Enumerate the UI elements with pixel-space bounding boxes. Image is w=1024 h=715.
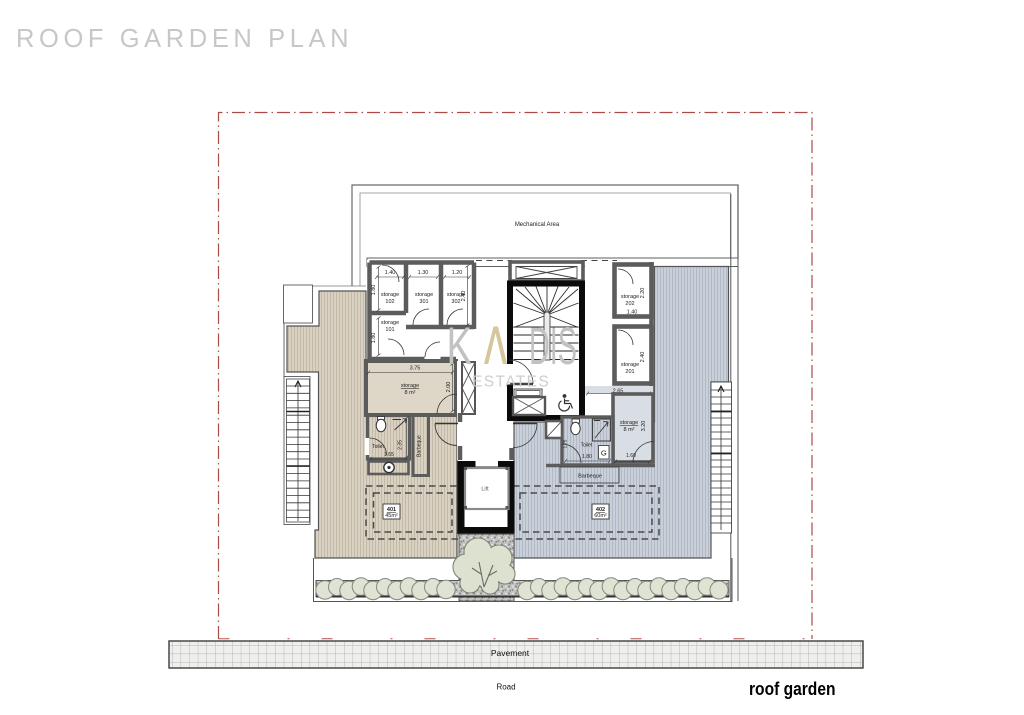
svg-text:1.30: 1.30 <box>418 270 429 276</box>
svg-text:Toilet: Toilet <box>372 444 384 450</box>
svg-text:storage: storage <box>621 294 639 300</box>
svg-text:202: 202 <box>625 301 634 307</box>
svg-text:Barbeque: Barbeque <box>417 435 423 457</box>
svg-text:45m²: 45m² <box>385 513 398 519</box>
svg-text:Lift: Lift <box>481 487 489 493</box>
svg-text:storage: storage <box>620 420 638 426</box>
svg-text:K: K <box>447 317 473 376</box>
svg-text:Pavement: Pavement <box>491 648 530 658</box>
svg-text:storage: storage <box>415 292 433 298</box>
svg-text:3.75: 3.75 <box>410 366 421 372</box>
svg-text:1.20: 1.20 <box>452 270 463 276</box>
svg-text:1.65: 1.65 <box>384 452 394 458</box>
svg-text:302: 302 <box>451 299 460 305</box>
svg-text:storage: storage <box>381 320 399 326</box>
svg-text:3.20: 3.20 <box>641 421 647 432</box>
svg-text:storage: storage <box>381 292 399 298</box>
svg-text:1.40: 1.40 <box>627 310 638 316</box>
svg-text:Mechanical Area: Mechanical Area <box>515 222 560 228</box>
svg-text:ESTATES: ESTATES <box>472 374 550 391</box>
svg-text:1.40: 1.40 <box>385 270 396 276</box>
svg-text:1.80: 1.80 <box>582 454 592 460</box>
svg-text:Road: Road <box>496 683 515 692</box>
svg-text:G: G <box>601 449 607 458</box>
svg-text:201: 201 <box>625 369 634 375</box>
svg-text:1.80: 1.80 <box>371 285 377 296</box>
svg-text:101: 101 <box>385 327 394 333</box>
svg-text:102: 102 <box>385 299 394 305</box>
svg-text:1.80: 1.80 <box>371 333 377 344</box>
svg-text:DIS: DIS <box>529 317 577 376</box>
svg-text:ROOF GARDEN PLAN: ROOF GARDEN PLAN <box>16 25 353 53</box>
svg-text:8 m²: 8 m² <box>624 427 635 433</box>
svg-text:60m²: 60m² <box>594 513 607 519</box>
svg-text:2.35: 2.35 <box>398 440 404 450</box>
svg-text:storage: storage <box>621 362 639 368</box>
svg-text:Barbeque: Barbeque <box>578 474 602 480</box>
svg-text:storage: storage <box>401 383 419 389</box>
svg-text:Toilet: Toilet <box>581 443 593 449</box>
svg-text:8 m²: 8 m² <box>405 390 416 396</box>
svg-text:2.40: 2.40 <box>461 291 467 302</box>
svg-text:roof garden: roof garden <box>749 679 836 699</box>
svg-text:301: 301 <box>419 299 428 305</box>
svg-text:2.00: 2.00 <box>446 382 452 393</box>
svg-text:2.20: 2.20 <box>640 288 646 299</box>
svg-text:2.40: 2.40 <box>640 352 646 363</box>
